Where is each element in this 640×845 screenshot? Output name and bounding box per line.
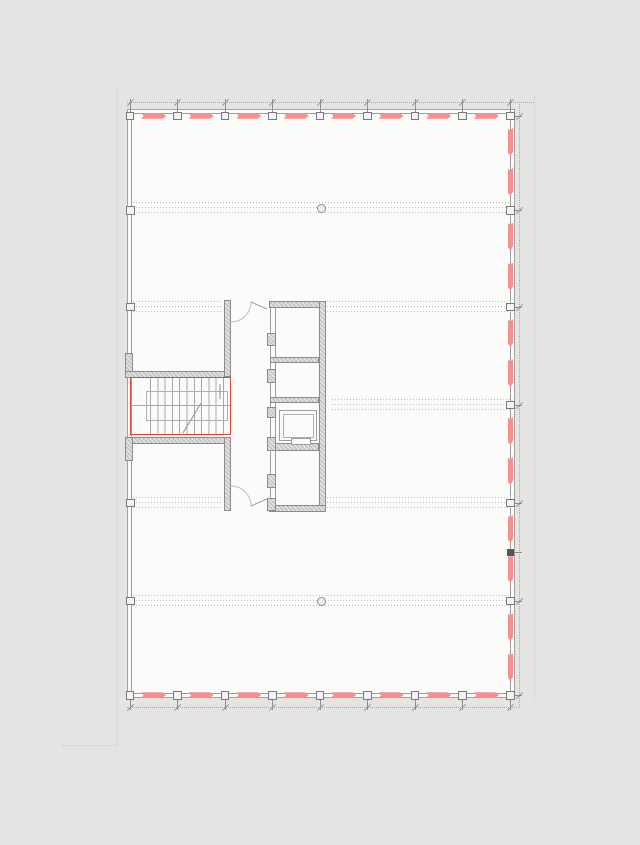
core-wall: [267, 437, 276, 451]
dotted-band: [331, 397, 511, 414]
core-wall: [269, 505, 326, 512]
core-wall: [267, 498, 276, 511]
facade-dash: [189, 692, 214, 698]
facade-dash: [508, 263, 514, 291]
core-wall: [267, 333, 276, 346]
column-marker: [506, 499, 515, 508]
core-wall: [224, 437, 231, 511]
core-wall: [269, 301, 326, 308]
dotted-band: [326, 495, 511, 512]
elevator-car-sill: [291, 438, 311, 445]
column-marker: [268, 112, 277, 121]
column-marker: [411, 112, 420, 121]
facade-dash: [508, 168, 514, 196]
column-marker: [506, 401, 515, 410]
reference-line: [62, 745, 118, 746]
facade-dash: [379, 692, 404, 698]
column-marker: [506, 597, 515, 606]
facade-dash: [236, 113, 261, 119]
facade-dash: [508, 417, 514, 445]
stair-enclosure-outline: [130, 377, 231, 435]
column-marker: [506, 112, 515, 121]
facade-dash: [474, 692, 499, 698]
reference-line: [534, 96, 535, 700]
core-wall: [267, 369, 276, 383]
dimension-line-top: [127, 102, 534, 103]
column-marker: [458, 691, 467, 700]
dark-marker-tick: [514, 552, 522, 553]
elevator-car-inner: [283, 414, 314, 438]
core-wall: [267, 474, 276, 488]
facade-dash: [426, 692, 451, 698]
core-wall: [319, 301, 326, 512]
facade-dash: [508, 223, 514, 251]
facade-dash: [331, 113, 356, 119]
facade-dash: [508, 319, 514, 347]
facade-dash: [141, 113, 166, 119]
column-marker: [506, 691, 515, 700]
floor-plan-drawing: [0, 0, 640, 845]
grid-axis-circle: [317, 204, 326, 213]
facade-dash: [284, 692, 309, 698]
facade-dash: [508, 613, 514, 641]
facade-dash: [189, 113, 214, 119]
core-wall: [125, 437, 231, 444]
facade-dash: [236, 692, 261, 698]
grid-axis-circle: [317, 597, 326, 606]
facade-dash: [141, 692, 166, 698]
column-marker: [268, 691, 277, 700]
column-marker: [126, 499, 135, 508]
facade-dash: [426, 113, 451, 119]
column-marker: [506, 206, 515, 215]
core-wall: [270, 397, 319, 403]
facade-dash: [508, 457, 514, 485]
column-marker: [316, 691, 325, 700]
core-wall: [224, 300, 231, 377]
dark-marker: [507, 549, 514, 556]
core-wall: [267, 407, 276, 418]
core-wall: [270, 357, 319, 363]
column-marker: [173, 691, 182, 700]
dotted-band: [132, 299, 223, 316]
facade-dash: [508, 515, 514, 543]
column-marker: [126, 597, 135, 606]
facade-dash: [508, 359, 514, 387]
column-marker: [126, 112, 135, 121]
column-marker: [506, 303, 515, 312]
facade-dash: [331, 692, 356, 698]
column-marker: [173, 112, 182, 121]
facade-dash: [284, 113, 309, 119]
column-marker: [316, 112, 325, 121]
column-marker: [458, 112, 467, 121]
column-marker: [221, 691, 230, 700]
column-marker: [126, 206, 135, 215]
facade-dash: [474, 113, 499, 119]
column-marker: [363, 691, 372, 700]
reference-line: [117, 88, 118, 745]
core-wall: [125, 437, 133, 461]
column-marker: [363, 112, 372, 121]
facade-dash: [508, 555, 514, 583]
column-marker: [126, 691, 135, 700]
column-marker: [126, 303, 135, 312]
column-marker: [411, 691, 420, 700]
facade-dash: [508, 128, 514, 156]
column-marker: [221, 112, 230, 121]
facade-dash: [508, 653, 514, 681]
dotted-band: [132, 495, 223, 512]
facade-dash: [379, 113, 404, 119]
dotted-band: [326, 299, 511, 316]
